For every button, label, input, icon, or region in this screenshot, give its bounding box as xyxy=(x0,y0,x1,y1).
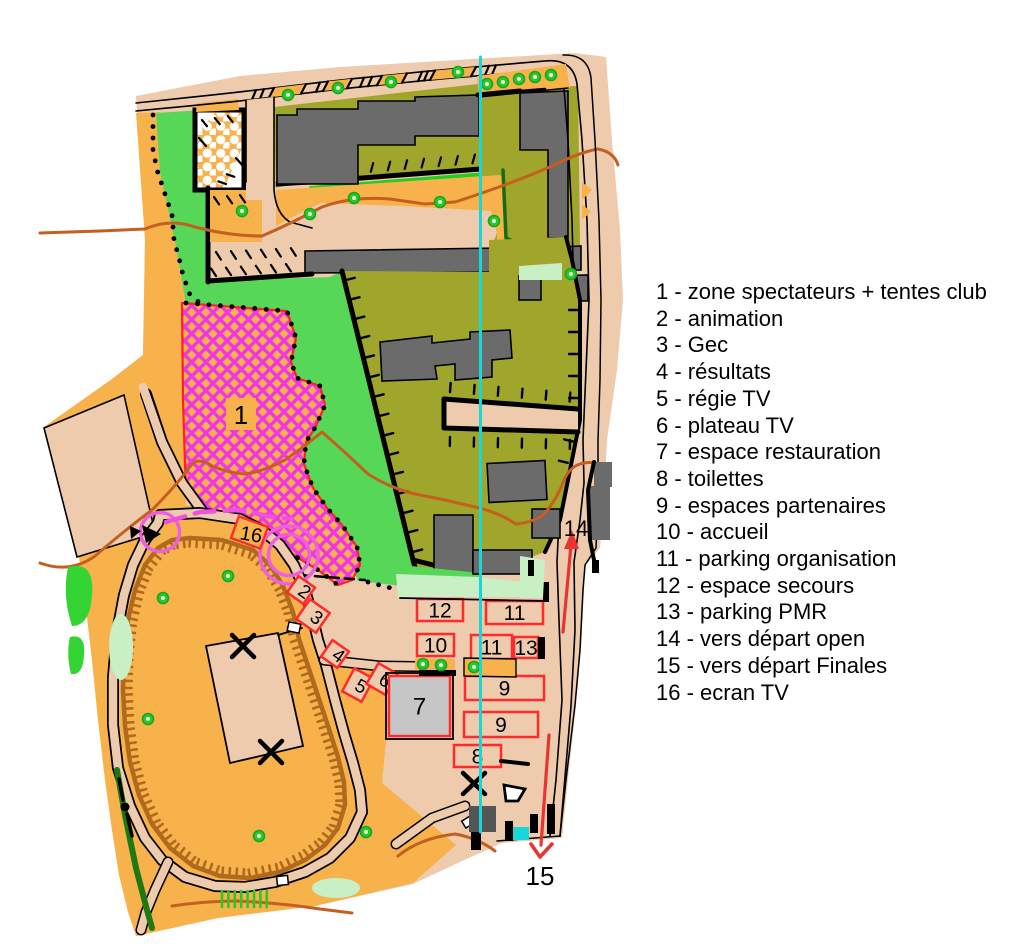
svg-text:10: 10 xyxy=(424,635,447,658)
svg-text:1: 1 xyxy=(234,400,248,430)
svg-text:15: 15 xyxy=(526,861,555,891)
svg-text:11: 11 xyxy=(504,602,526,625)
svg-text:13: 13 xyxy=(514,637,537,660)
svg-text:9: 9 xyxy=(495,714,507,737)
svg-text:12: 12 xyxy=(428,600,451,623)
svg-text:7: 7 xyxy=(413,694,426,721)
svg-text:16: 16 xyxy=(238,522,264,548)
svg-text:11: 11 xyxy=(481,637,503,660)
svg-text:9: 9 xyxy=(499,678,511,701)
svg-text:14: 14 xyxy=(564,516,588,541)
